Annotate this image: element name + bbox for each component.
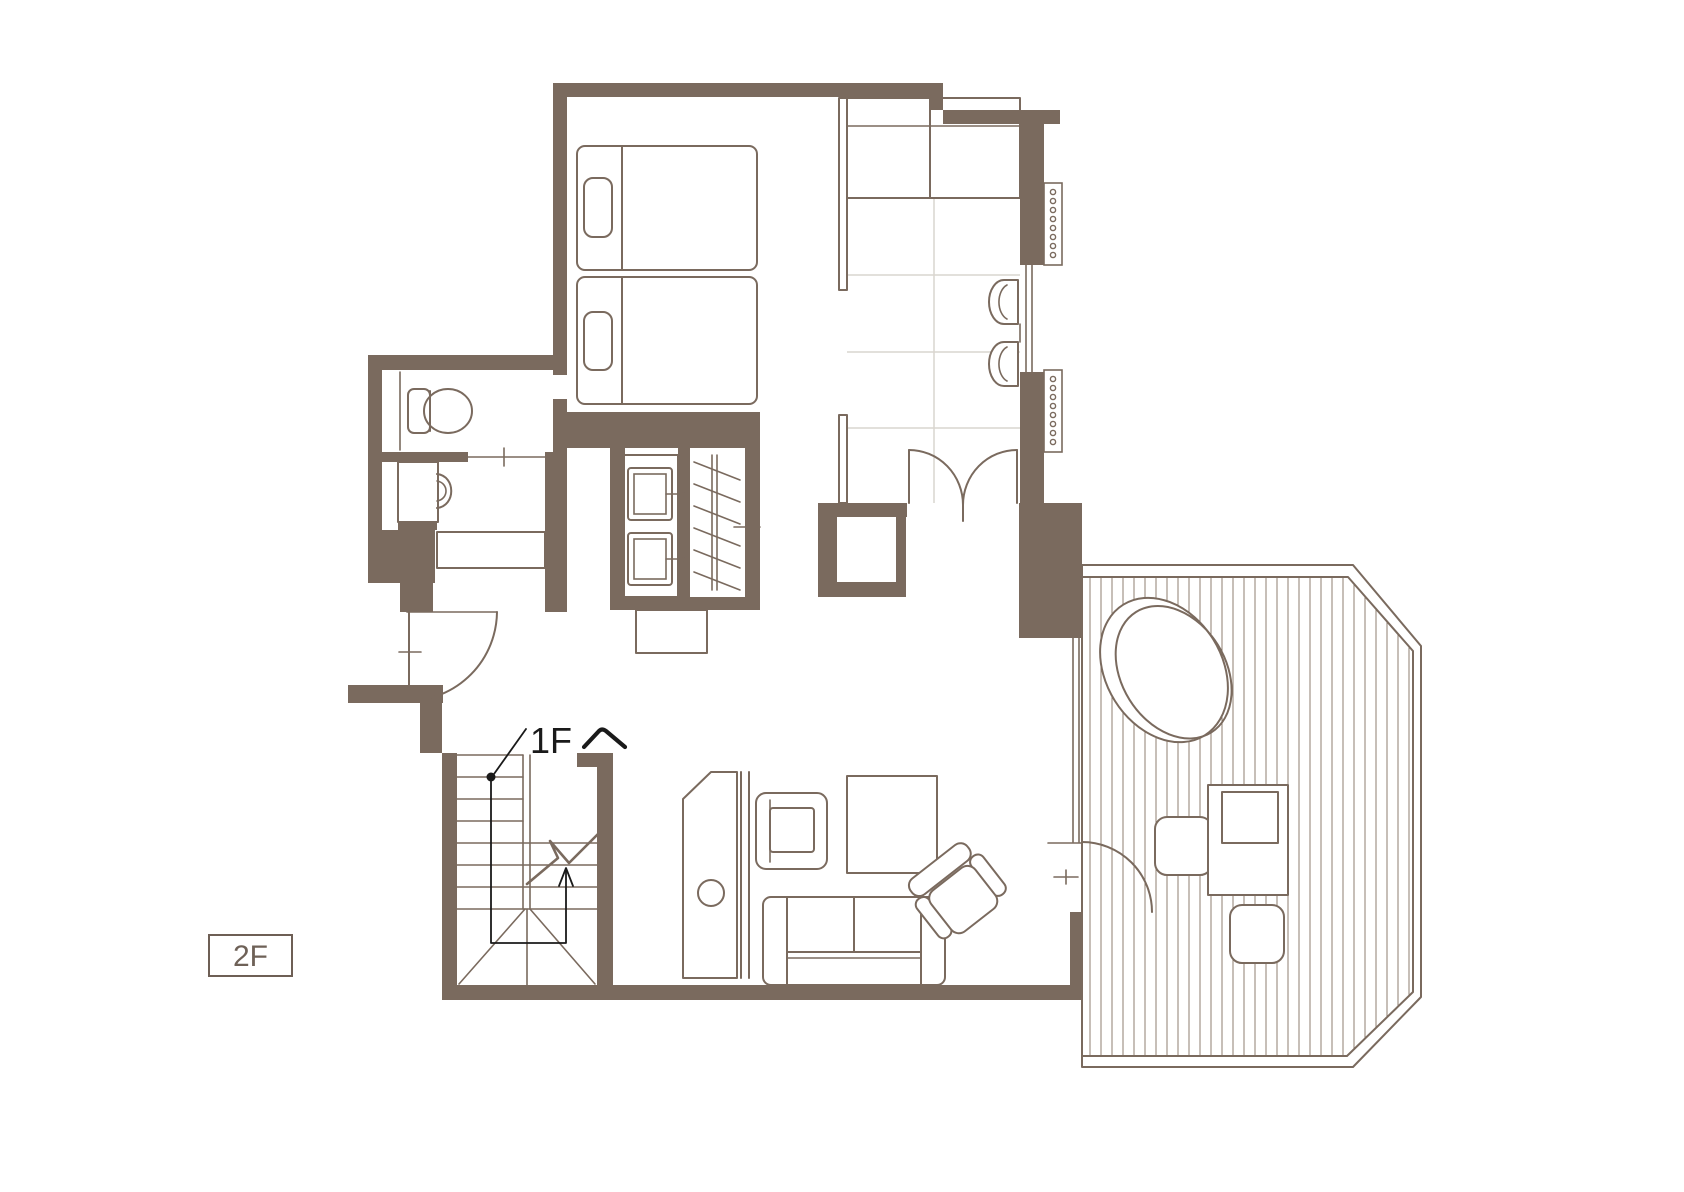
wall-segment bbox=[678, 448, 690, 597]
stair-treads bbox=[457, 755, 597, 909]
wall-segment bbox=[553, 83, 943, 97]
wall-segment bbox=[1020, 372, 1044, 520]
vanity-double-sink bbox=[622, 455, 684, 597]
window-chair-2 bbox=[989, 342, 1018, 386]
wall-segment bbox=[837, 503, 907, 517]
bedroom-window-gap bbox=[549, 375, 569, 399]
wall-segment bbox=[348, 685, 443, 703]
luggage-bench bbox=[636, 610, 707, 653]
hiragana-he-glyph bbox=[584, 730, 625, 748]
wall-segment bbox=[610, 597, 760, 610]
square-table bbox=[847, 776, 937, 873]
washbasin-bowl bbox=[437, 474, 451, 508]
wall-segment bbox=[442, 753, 457, 985]
floor-plan-drawing: 1F bbox=[0, 0, 1684, 1192]
washroom bbox=[398, 455, 760, 701]
floor-indicator: 2F bbox=[209, 935, 292, 976]
deck-table bbox=[1208, 785, 1288, 895]
floor-plan-canvas: 1F bbox=[0, 0, 1684, 1192]
double-doors[interactable] bbox=[909, 450, 1017, 521]
wall-segment bbox=[400, 583, 433, 612]
bed-1-pillow bbox=[584, 178, 612, 237]
stair-destination-text: 1F bbox=[530, 720, 572, 761]
wall-segment bbox=[553, 412, 760, 448]
toilet-bowl bbox=[424, 389, 472, 433]
living-room bbox=[683, 772, 1012, 985]
floor-indicator-text: 2F bbox=[233, 940, 268, 973]
wall-segment bbox=[545, 462, 567, 612]
wall-segment bbox=[382, 452, 468, 462]
shutter-coil-marks bbox=[1050, 189, 1055, 444]
wall-segment bbox=[577, 753, 613, 767]
window-chair-1 bbox=[989, 280, 1018, 324]
window-counter-chairs bbox=[989, 265, 1032, 386]
wall-segment bbox=[553, 83, 567, 355]
tv-board bbox=[683, 772, 749, 978]
shutter-symbols bbox=[1044, 183, 1062, 452]
twin-bedroom bbox=[577, 146, 757, 404]
fusuma-partition bbox=[839, 98, 847, 503]
wall-segment bbox=[597, 753, 613, 985]
toilet-room bbox=[400, 372, 545, 466]
stair-winders bbox=[459, 909, 595, 985]
washbasin-counter bbox=[398, 462, 438, 522]
wall-segment bbox=[420, 703, 442, 753]
wall-segment bbox=[368, 355, 567, 370]
wood-deck bbox=[1048, 560, 1421, 1070]
wall-segment bbox=[745, 448, 760, 597]
wall-segment bbox=[818, 582, 906, 597]
wall-segment bbox=[943, 110, 1060, 124]
wall-segment bbox=[1070, 912, 1082, 987]
wall-segment bbox=[545, 452, 567, 462]
wall-segment bbox=[368, 370, 382, 583]
deck-stool-2 bbox=[1230, 905, 1284, 963]
wall-segment bbox=[398, 522, 437, 530]
entry-shelf bbox=[437, 532, 545, 568]
wall-segment bbox=[1020, 124, 1044, 265]
wall-segment bbox=[1019, 503, 1082, 638]
wall-segment bbox=[442, 985, 1082, 1000]
bed-2-pillow bbox=[584, 312, 612, 370]
armchair bbox=[756, 793, 827, 869]
deck-stool-1 bbox=[1155, 817, 1212, 875]
wall-segment bbox=[380, 530, 435, 583]
